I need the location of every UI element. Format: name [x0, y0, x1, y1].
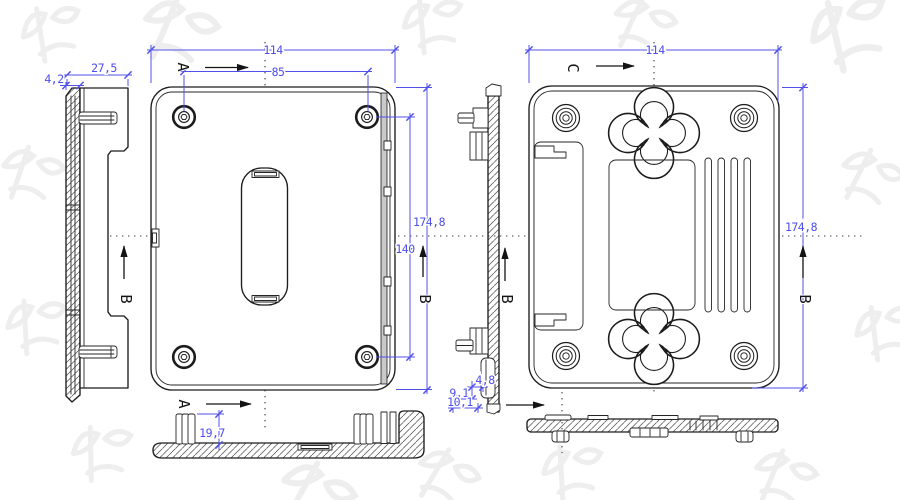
side-pin-top: [79, 112, 117, 124]
dim-post-height-text: 19,7: [199, 426, 225, 440]
dim-side-wall-text: 4,2: [44, 72, 63, 86]
section-label-b-left: B: [117, 294, 135, 303]
technical-drawing-canvas: 27,5 4,2 B: [0, 0, 900, 500]
front-view: 114 85 174,8 140 A B: [147, 43, 446, 394]
screw-hole-br: [356, 346, 378, 368]
screw-boss-bl: [553, 343, 580, 370]
middle-top-clips: [458, 108, 488, 160]
section-label-a-bottom: A: [175, 399, 193, 409]
rear-center-latch: [630, 428, 668, 437]
section-label-b-rear: B: [796, 294, 814, 303]
middle-section-view: 4,8 9,1 10,1 B: [447, 84, 516, 414]
dim-rear-width-text: 114: [645, 43, 665, 57]
screw-hole-tr: [356, 106, 378, 128]
section-label-b-middle: B: [498, 294, 516, 303]
screw-boss-tl: [553, 105, 580, 132]
right-wall-edge: [381, 93, 387, 384]
dim-rear-height-text: 174,8: [785, 220, 818, 234]
rear-left-panel: [534, 142, 583, 330]
section-label-c: C: [564, 63, 582, 72]
dim-side-depth: 27,5: [63, 61, 132, 86]
side-pin-bottom: [79, 346, 117, 358]
screw-boss-tr: [731, 105, 758, 132]
mount-post-right: [354, 414, 373, 444]
dim-front-hole-vspacing-text: 140: [395, 242, 415, 256]
rear-foot-right: [736, 431, 753, 442]
dim-side-depth-text: 27,5: [91, 61, 117, 75]
section-label-a-top: A: [174, 62, 192, 72]
rear-foot-left: [552, 431, 569, 442]
dim-front-hole-spacing-text: 85: [272, 65, 285, 79]
rear-bottom-view: [506, 405, 778, 442]
mount-post-left: [176, 414, 195, 444]
enclosure-drawing: 27,5 4,2 B: [0, 0, 900, 500]
rear-view: 114 174,8 C B: [525, 43, 818, 392]
dim-clip-width-text: 4,8: [475, 373, 495, 387]
dim-clip-depth-overall-text: 10,1: [447, 395, 473, 409]
left-side-view: 27,5 4,2 B: [44, 61, 135, 402]
section-label-b-front: B: [416, 294, 434, 303]
dim-front-height: 174,8: [396, 83, 446, 394]
dim-front-height-text: 174,8: [413, 215, 446, 229]
screw-boss-br: [731, 343, 758, 370]
left-edge-slot: [152, 229, 159, 247]
screw-hole-bl: [173, 346, 195, 368]
front-bottom-view: 19,7 A: [153, 399, 424, 458]
center-slot: [242, 168, 288, 305]
dim-front-width-text: 114: [263, 43, 283, 57]
